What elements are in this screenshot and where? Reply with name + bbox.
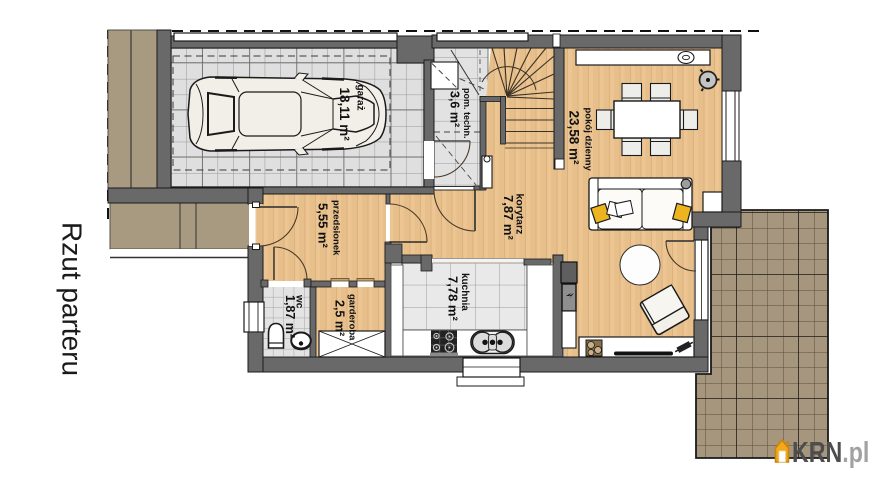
svg-text:1,87 m²: 1,87 m² — [283, 295, 297, 338]
svg-text:garderoba: garderoba — [347, 294, 358, 341]
svg-text:5,55 m²: 5,55 m² — [316, 203, 331, 248]
svg-text:18,11 m²: 18,11 m² — [337, 88, 352, 142]
svg-text:7,78 m²: 7,78 m² — [446, 276, 461, 321]
svg-text:7,87 m²: 7,87 m² — [501, 195, 516, 240]
svg-text:Rzut parteru: Rzut parteru — [57, 222, 88, 376]
svg-text:garaż: garaż — [355, 85, 366, 111]
svg-text:pokój dzienny: pokój dzienny — [583, 108, 594, 172]
svg-text:pom. techn.: pom. techn. — [462, 88, 472, 139]
svg-text:3,6 m²: 3,6 m² — [448, 91, 462, 127]
svg-text:23,58 m²: 23,58 m² — [567, 111, 582, 166]
svg-text:przedsionek: przedsionek — [331, 200, 342, 256]
svg-text:KRN.pl: KRN.pl — [792, 435, 869, 468]
svg-text:2,5 m²: 2,5 m² — [333, 300, 347, 336]
